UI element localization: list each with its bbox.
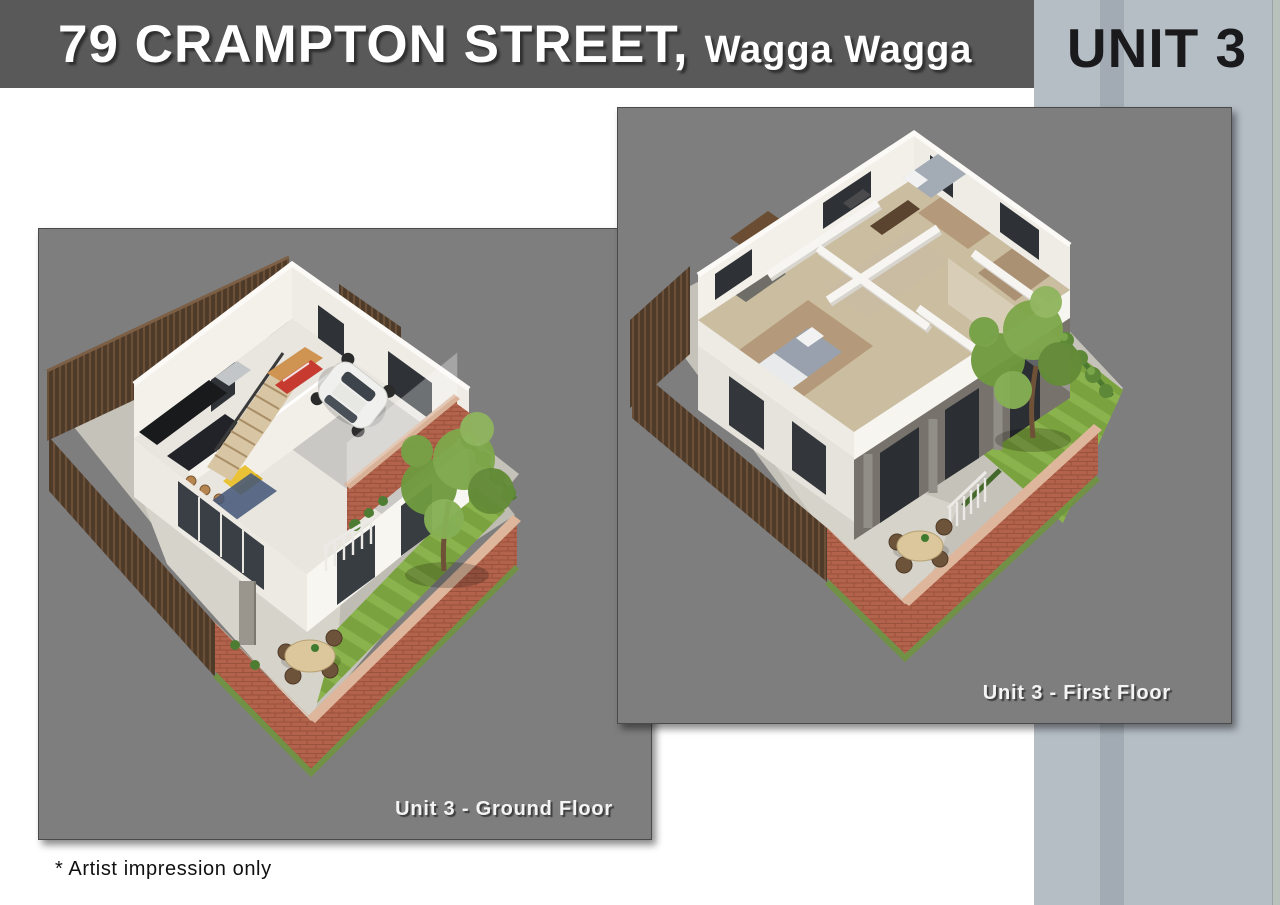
ground-floor-caption: Unit 3 - Ground Floor <box>395 798 613 821</box>
header-bar: 79 CRAMPTON STREET,Wagga Wagga <box>0 0 1034 88</box>
page-title: 79 CRAMPTON STREET,Wagga Wagga <box>58 14 972 75</box>
brochure-page: UNIT 3 79 CRAMPTON STREET,Wagga Wagga <box>0 0 1280 905</box>
ground-floor-render <box>39 229 651 839</box>
ground-floor-panel: Unit 3 - Ground Floor <box>38 228 652 840</box>
first-floor-panel: Unit 3 - First Floor <box>617 107 1232 724</box>
artist-impression-note: * Artist impression only <box>55 858 272 881</box>
first-floor-render <box>618 108 1231 723</box>
first-floor-caption: Unit 3 - First Floor <box>983 682 1171 705</box>
title-city: Wagga Wagga <box>705 29 973 71</box>
unit-label: UNIT 3 <box>1034 16 1280 80</box>
strip-right-edge <box>1272 0 1280 905</box>
title-address: 79 CRAMPTON STREET, <box>58 15 689 74</box>
